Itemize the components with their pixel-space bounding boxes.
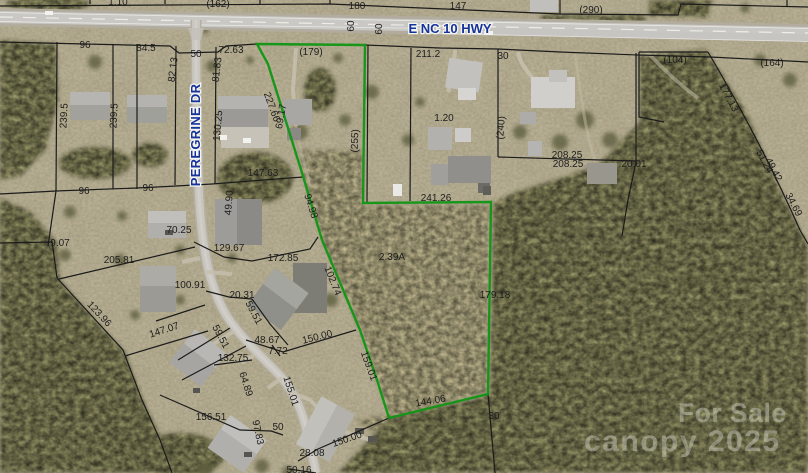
svg-text:50: 50 — [190, 49, 202, 60]
svg-text:20.01: 20.01 — [621, 159, 646, 170]
svg-text:30: 30 — [488, 411, 500, 422]
svg-text:70.25: 70.25 — [166, 225, 191, 236]
svg-text:72.63: 72.63 — [218, 45, 243, 56]
svg-text:9.07: 9.07 — [50, 238, 70, 249]
svg-text:50.16: 50.16 — [286, 465, 311, 473]
svg-text:239.5: 239.5 — [58, 103, 70, 129]
svg-text:canopy 2025: canopy 2025 — [584, 425, 781, 458]
svg-text:For Sale: For Sale — [678, 398, 787, 428]
svg-text:179.18: 179.18 — [480, 290, 511, 301]
svg-text:(240): (240) — [495, 116, 508, 140]
svg-text:48.67: 48.67 — [254, 335, 279, 346]
svg-text:84.5: 84.5 — [136, 43, 156, 54]
svg-text:172.85: 172.85 — [268, 253, 299, 264]
svg-text:1.10: 1.10 — [108, 0, 128, 8]
svg-text:E NC 10 HWY: E NC 10 HWY — [408, 21, 491, 36]
svg-text:(104): (104) — [663, 55, 686, 66]
svg-text:100.91: 100.91 — [175, 280, 206, 291]
svg-text:96: 96 — [79, 40, 91, 51]
svg-text:132.75: 132.75 — [218, 353, 249, 364]
svg-text:2.39A: 2.39A — [379, 252, 405, 263]
svg-text:(255): (255) — [350, 129, 362, 153]
svg-text:147.63: 147.63 — [248, 168, 279, 179]
svg-text:60: 60 — [374, 23, 385, 35]
svg-text:208.25: 208.25 — [553, 159, 584, 170]
svg-text:(164): (164) — [760, 58, 783, 69]
svg-text:30: 30 — [497, 51, 509, 62]
svg-text:147: 147 — [450, 1, 467, 12]
svg-text:(162): (162) — [206, 0, 229, 10]
svg-text:28.08: 28.08 — [299, 448, 324, 459]
svg-text:96: 96 — [78, 186, 90, 197]
svg-text:129.67: 129.67 — [214, 243, 245, 254]
svg-text:205.81: 205.81 — [104, 255, 135, 266]
svg-text:211.2: 211.2 — [416, 49, 441, 60]
svg-text:96: 96 — [142, 183, 154, 194]
svg-text:(179): (179) — [299, 47, 322, 58]
svg-text:241.26: 241.26 — [421, 193, 452, 204]
svg-text:7.72: 7.72 — [268, 346, 288, 357]
svg-text:239.5: 239.5 — [108, 103, 120, 129]
svg-text:(290): (290) — [579, 5, 602, 16]
svg-text:180: 180 — [349, 1, 366, 12]
svg-text:50: 50 — [272, 422, 284, 433]
svg-text:60: 60 — [346, 20, 357, 32]
svg-text:1.20: 1.20 — [434, 113, 454, 124]
svg-text:156.51: 156.51 — [196, 412, 227, 423]
svg-text:49.90: 49.90 — [223, 190, 236, 216]
svg-text:PEREGRINE DR: PEREGRINE DR — [188, 83, 203, 186]
